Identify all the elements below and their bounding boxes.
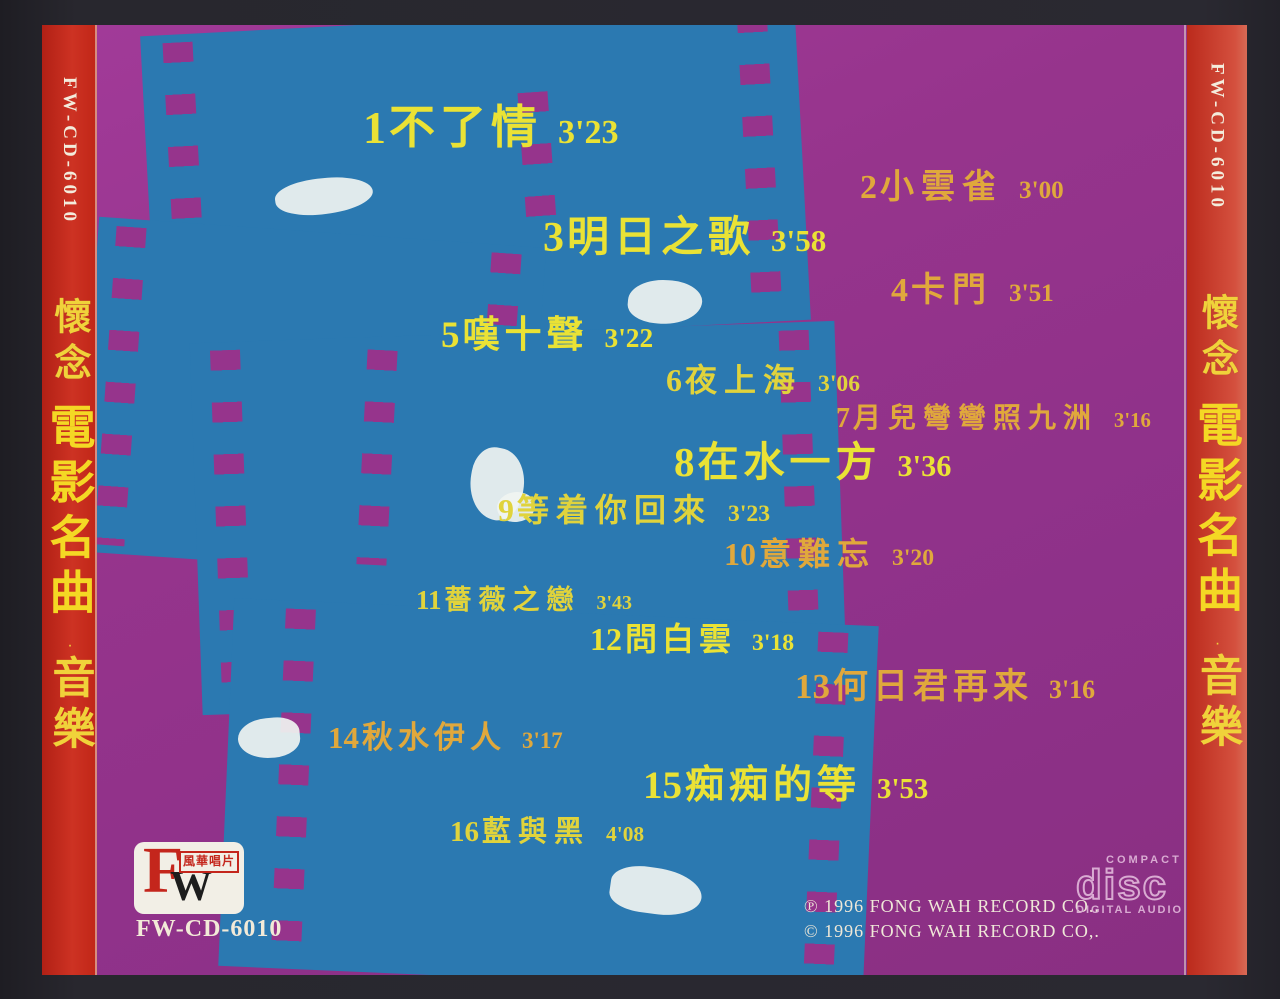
track-time: 3'23 [728,501,770,527]
copyright-notice: ℗ 1996 FONG WAH RECORD CO.. © 1996 FONG … [804,894,1100,944]
track-number: 12 [590,621,622,657]
track-number: 11 [416,585,442,615]
track-item: 1不了情3'23 [363,104,619,151]
track-item: 8在水一方3'36 [674,442,951,483]
track-time: 3'51 [1009,280,1054,307]
track-number: 4 [891,272,908,309]
track-number: 15 [643,764,682,807]
left-spine-title-suffix: 音樂 [48,655,91,757]
track-time: 3'20 [892,545,934,571]
track-item: 12問白雲3'18 [590,623,794,656]
left-spine-dot: · [62,637,78,654]
track-time: 4'08 [606,822,644,846]
catalog-number: FW-CD-6010 [136,916,282,943]
right-spine: FW-CD-6010 懷念 電影名曲 · 音樂 [1187,25,1247,975]
track-item: 11薔薇之戀3'43 [416,587,632,614]
film-sprocket-holes [737,25,783,315]
track-title: 秋水伊人 [362,720,506,755]
track-time: 3'43 [597,592,633,614]
scan-edge-sliver [95,25,97,975]
track-title: 藍與黑 [482,816,590,848]
film-sprocket-holes [271,608,316,961]
track-title: 不了情 [389,101,542,153]
cd-logo-digital-audio-text: DIGITAL AUDIO [1076,904,1187,916]
track-item: 5嘆十聲3'22 [441,316,653,354]
logo-company-name: 風華唱片 [179,851,239,873]
track-time: 3'36 [898,449,952,483]
tray-card-main-art: 1不了情3'23 2小雲雀3'00 3明日之歌3'58 4卡門3'51 5嘆十聲… [97,25,1187,975]
track-title: 問白雲 [625,621,736,657]
track-title: 月兒彎彎照九洲 [853,403,1098,434]
track-number: 7 [836,403,850,434]
right-spine-series-label: 懷念 [1199,293,1236,385]
track-title: 明日之歌 [567,213,755,260]
track-title: 痴痴的等 [685,764,861,807]
left-spine-catalog: FW-CD-6010 [60,77,79,225]
track-time: 3'17 [522,728,563,753]
track-number: 5 [441,315,460,356]
track-item: 9等着你回來3'23 [498,494,770,527]
track-number: 8 [674,439,695,485]
track-title: 夜上海 [685,362,802,398]
track-item: 10意難忘3'20 [724,538,934,571]
track-title: 卡門 [911,272,993,309]
track-time: 3'16 [1114,410,1151,432]
track-number: 1 [363,102,386,153]
track-time: 3'58 [771,223,826,258]
scan-edge-sliver [1184,25,1186,975]
track-number: 6 [666,362,682,398]
track-number: 9 [498,492,514,528]
cd-logo-disc-text: disc [1076,866,1187,904]
copyright-line-p: ℗ 1996 FONG WAH RECORD CO.. [804,894,1100,919]
track-title: 意難忘 [759,536,876,572]
track-title: 等着你回來 [517,492,712,528]
track-item: 3明日之歌3'58 [543,216,826,259]
track-item: 6夜上海3'06 [666,364,860,397]
right-spine-dot: · [1209,635,1225,652]
track-time: 3'16 [1049,675,1095,704]
track-item: 14秋水伊人3'17 [328,722,563,753]
track-time: 3'22 [605,323,654,353]
track-time: 3'53 [877,773,928,805]
track-time: 3'23 [558,114,619,151]
track-title: 在水一方 [698,439,882,485]
track-number: 10 [724,536,756,572]
track-title: 何日君再来 [833,667,1033,706]
track-item: 13何日君再来3'16 [795,669,1095,704]
left-spine-series-label: 懷念 [51,297,88,389]
right-spine-album-title: 電影名曲 [1194,401,1240,621]
cd-back-cover-scan: FW-CD-6010 懷念 電影名曲 · 音樂 [0,0,1280,999]
track-title: 薔薇之戀 [445,585,581,615]
track-item: 16藍與黑4'08 [450,818,644,847]
track-time: 3'00 [1019,177,1064,204]
track-title: 小雲雀 [880,169,1003,206]
film-sprocket-holes [97,226,147,546]
fong-wah-label-logo: F W 風華唱片 [134,842,244,914]
track-number: 14 [328,720,359,755]
track-time: 3'06 [818,371,860,397]
track-item: 4卡門3'51 [891,273,1054,308]
right-spine-title-suffix: 音樂 [1196,653,1239,755]
track-time: 3'18 [752,630,794,656]
copyright-line-c: © 1996 FONG WAH RECORD CO,. [804,919,1100,944]
track-item: 15痴痴的等3'53 [643,766,928,805]
track-number: 13 [795,667,830,706]
left-spine-album-title: 電影名曲 [47,403,93,623]
left-spine: FW-CD-6010 懷念 電影名曲 · 音樂 [42,25,97,975]
track-item: 7月兒彎彎照九洲3'16 [836,404,1151,433]
track-number: 16 [450,816,479,848]
compact-disc-logo: COMPACT disc DIGITAL AUDIO [1076,854,1187,916]
track-number: 2 [860,169,877,206]
track-item: 2小雲雀3'00 [860,170,1064,205]
right-spine-catalog: FW-CD-6010 [1208,63,1227,211]
track-number: 3 [543,215,564,261]
track-title: 嘆十聲 [463,314,589,355]
